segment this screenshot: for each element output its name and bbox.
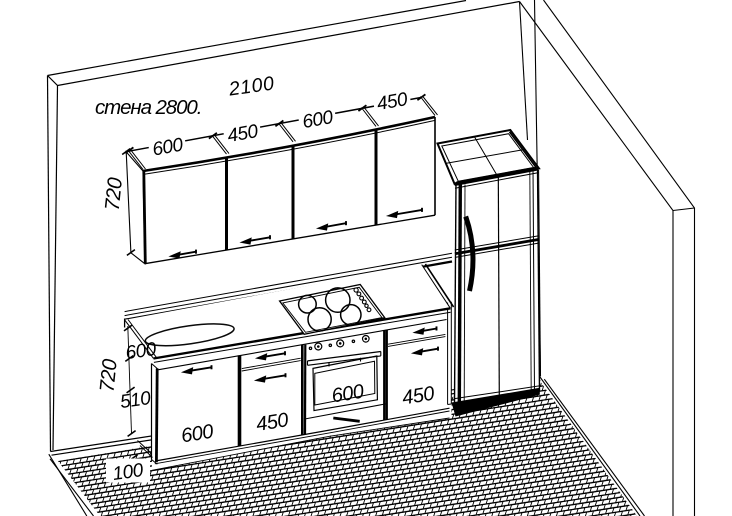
svg-text:стена 2800.: стена 2800.: [95, 96, 201, 119]
svg-text:510: 510: [119, 388, 153, 413]
svg-text:600: 600: [124, 339, 158, 364]
svg-text:720: 720: [95, 357, 121, 393]
svg-text:720: 720: [101, 176, 127, 212]
svg-text:100: 100: [111, 460, 145, 485]
